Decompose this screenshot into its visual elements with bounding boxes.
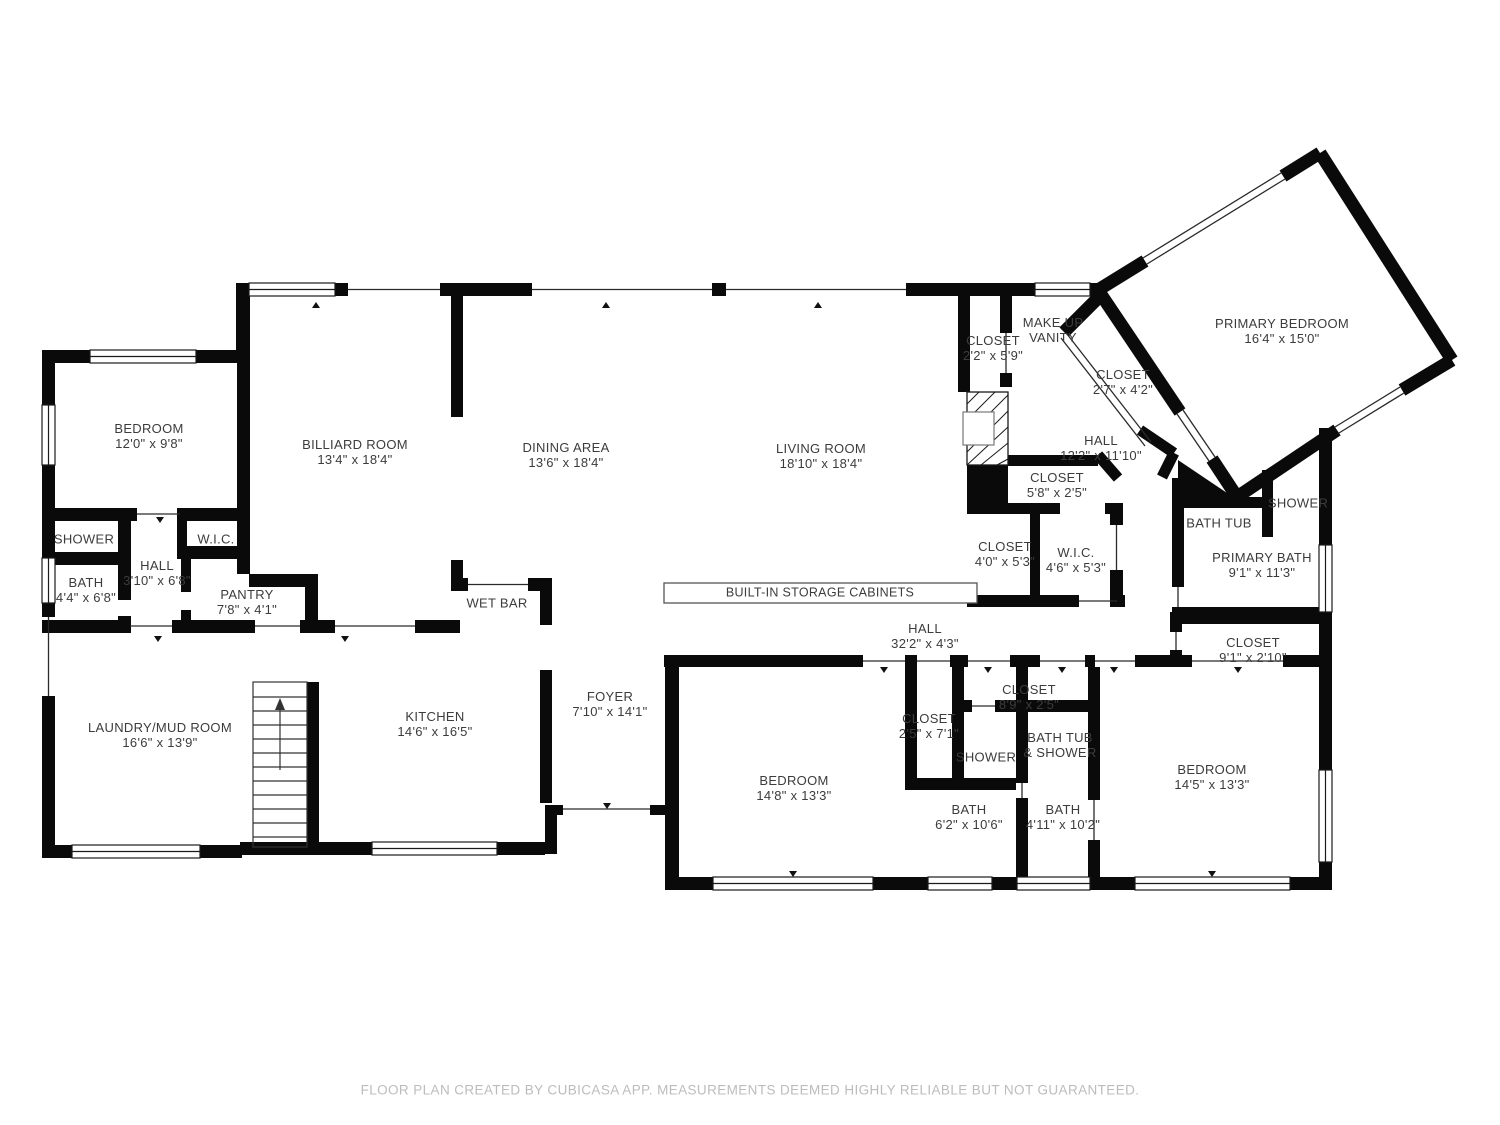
staircase — [253, 682, 307, 847]
room-label-closet-4-0: CLOSET4'0" x 5'3" — [975, 539, 1035, 569]
room-label-bedroom-1: BEDROOM12'0" x 9'8" — [114, 421, 183, 451]
room-label-kitchen: KITCHEN14'6" x 16'5" — [397, 709, 472, 739]
room-label-closet-2-7: CLOSET2'7" x 4'2" — [1093, 367, 1153, 397]
window — [1035, 283, 1090, 296]
room-label-shower-left: SHOWER — [54, 532, 114, 547]
room-label-wic-left: W.I.C. — [197, 532, 234, 547]
window — [928, 877, 992, 890]
room-label-bath-tub-shower: BATH TUB& SHOWER — [1023, 730, 1096, 760]
room-label-shower-middle: SHOWER — [956, 750, 1016, 765]
window — [1319, 545, 1332, 612]
room-label-closet-8-9: CLOSET8'9" x 2'5" — [999, 682, 1059, 712]
room-label-make-up-vanity: MAKE UPVANITY — [1023, 315, 1084, 345]
room-label-shower-primary: SHOWER — [1268, 496, 1328, 511]
room-label-bath-left: BATH4'4" x 6'8" — [56, 575, 116, 605]
fireplace — [963, 392, 1008, 465]
footer-disclaimer: FLOOR PLAN CREATED BY CUBICASA APP. MEAS… — [361, 1083, 1140, 1098]
fireplace-opening — [963, 412, 994, 445]
window — [1135, 877, 1290, 890]
room-label-primary-bath: PRIMARY BATH9'1" x 11'3" — [1212, 550, 1312, 580]
window — [249, 283, 335, 296]
room-label-laundry-mud-room: LAUNDRY/MUD ROOM16'6" x 13'9" — [88, 720, 232, 750]
room-label-wet-bar: WET BAR — [466, 596, 527, 611]
window — [1319, 770, 1332, 862]
room-label-closet-9-1: CLOSET9'1" x 2'10" — [1219, 635, 1287, 665]
room-label-closet-2-2: CLOSET2'2" x 5'9" — [963, 333, 1023, 363]
room-label-bath-tub-primary: BATH TUB — [1186, 516, 1251, 531]
room-label-dining-area: DINING AREA13'6" x 18'4" — [522, 440, 609, 470]
window — [713, 877, 873, 890]
window — [72, 845, 200, 858]
floor-plan-canvas: BEDROOM12'0" x 9'8" BILLIARD ROOM13'4" x… — [0, 0, 1500, 1125]
room-label-closet-5-8: CLOSET5'8" x 2'5" — [1027, 470, 1087, 500]
window — [372, 842, 497, 855]
room-label-hall-12-2: HALL12'2" x 11'10" — [1060, 433, 1142, 463]
window — [90, 350, 196, 363]
room-label-pantry: PANTRY7'8" x 4'1" — [217, 587, 277, 617]
room-label-primary-bedroom: PRIMARY BEDROOM16'4" x 15'0" — [1215, 316, 1349, 346]
room-label-hall-32-2: HALL32'2" x 4'3" — [891, 621, 959, 651]
room-label-living-room: LIVING ROOM18'10" x 18'4" — [776, 441, 866, 471]
window — [42, 558, 55, 603]
room-label-wic-4-6: W.I.C.4'6" x 5'3" — [1046, 545, 1106, 575]
room-label-closet-2-5: CLOSET2'5" x 7'1" — [899, 711, 959, 741]
room-label-bath-6-2: BATH6'2" x 10'6" — [935, 802, 1003, 832]
room-label-billiard-room: BILLIARD ROOM13'4" x 18'4" — [302, 437, 408, 467]
room-label-bedroom-3: BEDROOM14'5" x 13'3" — [1174, 762, 1249, 792]
window — [1017, 877, 1090, 890]
room-label-bedroom-2: BEDROOM14'8" x 13'3" — [756, 773, 831, 803]
label-built-in-storage-cabinets: BUILT-IN STORAGE CABINETS — [726, 586, 914, 601]
room-label-bath-4-11: BATH4'11" x 10'2" — [1026, 802, 1100, 832]
room-label-hall-3-10: HALL3'10" x 6'8" — [123, 558, 191, 588]
window — [42, 405, 55, 465]
room-label-foyer: FOYER7'10" x 14'1" — [572, 689, 647, 719]
